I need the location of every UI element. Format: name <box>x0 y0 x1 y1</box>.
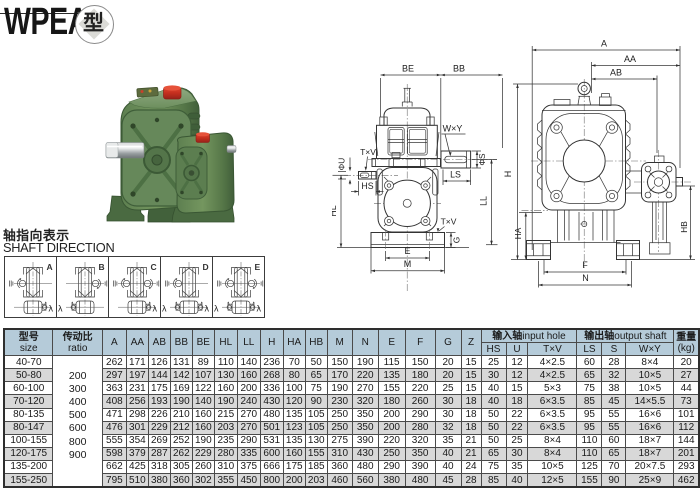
svg-text:N: N <box>582 273 589 283</box>
svg-text:HS: HS <box>361 181 373 191</box>
svg-text:λ: λ <box>162 304 167 314</box>
svg-text:BE: BE <box>402 64 414 74</box>
svg-text:AA: AA <box>624 54 636 64</box>
svg-text:HB: HB <box>679 221 689 233</box>
svg-text:λ: λ <box>205 304 210 314</box>
svg-text:A: A <box>601 39 607 49</box>
svg-text:LS: LS <box>450 170 461 180</box>
svg-text:λ: λ <box>152 304 157 314</box>
svg-text:G: G <box>452 237 462 243</box>
svg-text:AB: AB <box>610 68 622 78</box>
svg-text:BB: BB <box>453 64 465 74</box>
svg-text:λ: λ <box>48 304 53 314</box>
svg-text:E: E <box>255 262 261 272</box>
svg-text:M: M <box>404 259 412 269</box>
svg-text:W×Y: W×Y <box>443 124 463 134</box>
svg-text:T×V: T×V <box>360 147 376 157</box>
svg-text:λ: λ <box>257 304 262 314</box>
svg-text:E: E <box>404 246 410 256</box>
svg-text:F: F <box>582 260 588 270</box>
svg-text:HL: HL <box>332 205 338 216</box>
svg-text:A: A <box>46 262 52 272</box>
svg-text:LL: LL <box>479 196 489 206</box>
svg-text:T×V: T×V <box>441 217 457 227</box>
svg-text:λ: λ <box>58 304 63 314</box>
svg-text:λ: λ <box>214 304 219 314</box>
svg-text:HA: HA <box>513 227 523 239</box>
svg-text:D: D <box>203 262 209 272</box>
svg-text:C: C <box>150 262 156 272</box>
svg-text:ΦU: ΦU <box>337 158 347 171</box>
svg-text:H: H <box>503 171 513 178</box>
svg-text:B: B <box>98 262 104 272</box>
